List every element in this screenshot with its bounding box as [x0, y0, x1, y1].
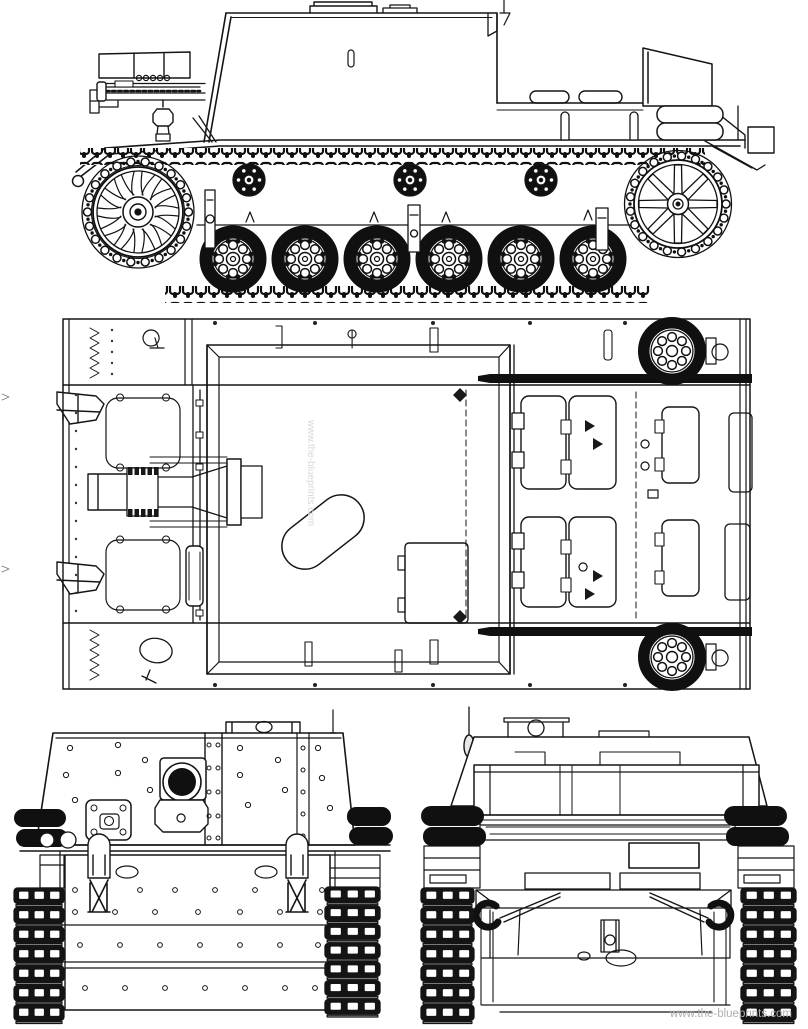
svg-text:www.the-blueprints.com: www.the-blueprints.com [305, 419, 316, 526]
svg-text:www.the-blueprints.com: www.the-blueprints.com [669, 1008, 792, 1020]
